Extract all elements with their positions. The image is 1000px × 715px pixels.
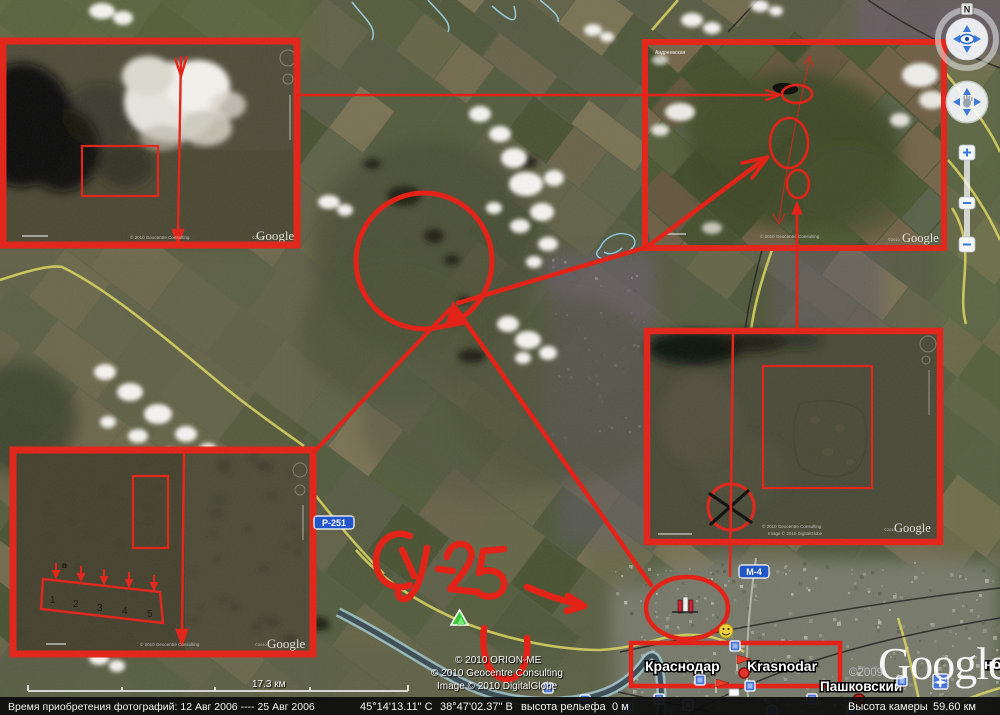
- svg-text:Krasnodar: Krasnodar: [747, 658, 818, 674]
- svg-text:высота рельефа: высота рельефа: [521, 701, 607, 713]
- svg-text:38°47'02.37" В: 38°47'02.37" В: [440, 701, 513, 713]
- svg-text:45°14'13.11" С: 45°14'13.11" С: [360, 701, 433, 713]
- svg-text:Время приобретения фотографий:: Время приобретения фотографий: 12 Авг 20…: [8, 701, 315, 713]
- svg-text:© 2010 ORION-ME: © 2010 ORION-ME: [455, 655, 542, 666]
- svg-text:М-4: М-4: [746, 567, 762, 577]
- svg-text:©2009: ©2009: [849, 667, 883, 679]
- svg-text:Высота камеры: Высота камеры: [848, 701, 928, 713]
- svg-text:0 м: 0 м: [612, 701, 629, 713]
- svg-text:59.60 км: 59.60 км: [933, 701, 976, 713]
- svg-text:© 2010 Geocentre Consulting: © 2010 Geocentre Consulting: [431, 668, 563, 679]
- svg-text:Краснодар: Краснодар: [645, 658, 720, 674]
- svg-text:Р-251: Р-251: [322, 518, 346, 528]
- svg-text:N: N: [964, 5, 971, 15]
- svg-text:Google: Google: [878, 638, 1000, 689]
- svg-text:17.3 км: 17.3 км: [252, 679, 286, 690]
- svg-text:Image © 2010 DigitalGlobe: Image © 2010 DigitalGlobe: [437, 681, 558, 692]
